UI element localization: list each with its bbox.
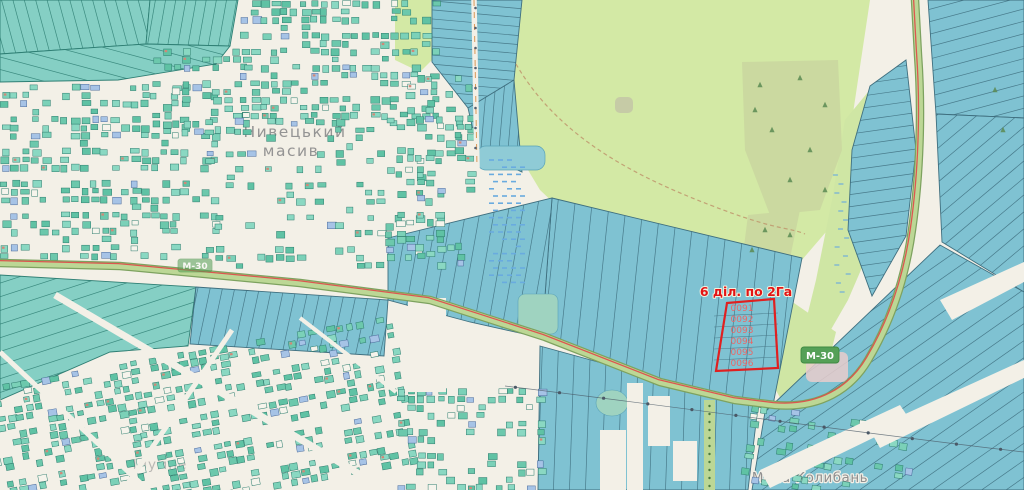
parcel bbox=[171, 150, 178, 155]
parcel bbox=[448, 396, 454, 403]
parcel bbox=[420, 90, 428, 95]
parcel bbox=[102, 180, 110, 186]
parcel bbox=[226, 183, 233, 188]
parcel bbox=[436, 117, 442, 123]
parcel bbox=[519, 470, 526, 476]
parcel bbox=[107, 463, 113, 469]
parcel bbox=[757, 438, 764, 446]
parcel bbox=[422, 17, 431, 24]
parcel bbox=[81, 84, 89, 89]
parcel bbox=[332, 2, 339, 9]
parcel bbox=[320, 40, 326, 46]
parcel bbox=[299, 396, 308, 403]
parcel bbox=[233, 57, 241, 63]
parcel bbox=[172, 244, 181, 250]
parcel bbox=[7, 423, 15, 429]
parcel bbox=[537, 397, 546, 403]
parcel bbox=[43, 100, 51, 106]
street-gap bbox=[408, 298, 446, 392]
parcel bbox=[408, 405, 416, 410]
parcel bbox=[163, 197, 170, 203]
tree-dot bbox=[708, 429, 710, 431]
parcel bbox=[143, 93, 150, 98]
parcel bbox=[131, 246, 137, 251]
parcel bbox=[350, 65, 356, 71]
parcel bbox=[377, 447, 385, 455]
tree-dot bbox=[708, 453, 710, 455]
parcel bbox=[21, 182, 27, 187]
parcel bbox=[71, 118, 80, 124]
parcel bbox=[262, 98, 270, 105]
parcel bbox=[336, 248, 344, 254]
parcel bbox=[182, 89, 189, 95]
parcel bbox=[200, 213, 208, 218]
parcel bbox=[226, 127, 234, 133]
parcel bbox=[258, 254, 265, 260]
parcel bbox=[242, 414, 251, 422]
parcel bbox=[284, 374, 293, 381]
pond bbox=[596, 390, 628, 416]
parcel bbox=[448, 245, 454, 251]
building bbox=[14, 159, 17, 161]
parcel bbox=[198, 350, 206, 356]
parcel bbox=[216, 246, 224, 252]
parcel bbox=[232, 481, 240, 489]
parcel bbox=[339, 340, 348, 348]
parcel bbox=[376, 317, 384, 323]
parcel bbox=[244, 437, 253, 445]
parcel bbox=[321, 80, 328, 85]
parcel bbox=[142, 85, 148, 91]
parcel bbox=[342, 113, 350, 120]
parcel bbox=[211, 198, 219, 204]
parcel bbox=[320, 16, 326, 23]
parcel bbox=[336, 151, 344, 158]
parcel bbox=[332, 66, 340, 72]
parcel bbox=[101, 100, 108, 106]
parcel bbox=[499, 389, 508, 394]
parcel bbox=[248, 183, 254, 190]
parcel bbox=[206, 159, 215, 164]
parcel bbox=[439, 396, 445, 401]
parcel bbox=[321, 359, 330, 365]
building bbox=[225, 91, 228, 93]
parcel bbox=[206, 120, 213, 125]
parcel bbox=[233, 49, 240, 55]
parcel bbox=[899, 443, 908, 451]
parcel bbox=[92, 228, 99, 234]
parcel bbox=[391, 81, 399, 86]
parcel bbox=[498, 429, 506, 436]
parcel bbox=[458, 155, 466, 161]
parcel-id-label: 0091 bbox=[731, 304, 754, 314]
parcel bbox=[72, 164, 80, 170]
parcel bbox=[397, 156, 403, 163]
tree-dot bbox=[708, 485, 710, 487]
parcel bbox=[32, 190, 38, 196]
parcel bbox=[243, 130, 251, 135]
parcel bbox=[11, 245, 17, 251]
parcel bbox=[428, 413, 434, 419]
parcel bbox=[82, 118, 90, 124]
parcel bbox=[467, 398, 474, 403]
parcel bbox=[418, 75, 425, 82]
parcel bbox=[277, 231, 285, 238]
parcel bbox=[59, 423, 67, 430]
parcel bbox=[332, 358, 340, 364]
parcel bbox=[211, 109, 218, 116]
building bbox=[306, 184, 309, 186]
parcel bbox=[390, 105, 396, 110]
parcel bbox=[263, 34, 271, 40]
parcel bbox=[161, 214, 168, 219]
parcel bbox=[320, 9, 326, 16]
parcel bbox=[167, 404, 175, 411]
parcel bbox=[436, 159, 442, 164]
parcel bbox=[428, 100, 435, 106]
parcel bbox=[179, 474, 187, 480]
parcel bbox=[437, 135, 444, 142]
parcel bbox=[343, 97, 350, 102]
parcel bbox=[438, 123, 444, 129]
parcel bbox=[19, 479, 26, 486]
parcel bbox=[214, 97, 222, 104]
building bbox=[45, 450, 48, 453]
parcel bbox=[468, 469, 475, 474]
parcel bbox=[247, 151, 256, 157]
parcel bbox=[236, 264, 243, 269]
parcel bbox=[132, 377, 139, 383]
parcel bbox=[359, 459, 367, 466]
parcel bbox=[147, 406, 155, 413]
parcel bbox=[455, 132, 461, 137]
parcel bbox=[122, 125, 130, 132]
parcel bbox=[399, 430, 408, 437]
parcel bbox=[52, 441, 59, 447]
parcel bbox=[286, 256, 294, 262]
power-pole-dot bbox=[646, 402, 649, 405]
parcel bbox=[152, 213, 160, 218]
parcel bbox=[21, 245, 29, 251]
parcel bbox=[390, 97, 398, 102]
parcel bbox=[279, 407, 287, 414]
parcel bbox=[79, 484, 86, 490]
parcel bbox=[379, 390, 386, 397]
parcel bbox=[381, 80, 388, 86]
parcel bbox=[83, 378, 92, 385]
parcel bbox=[157, 462, 164, 469]
parcel bbox=[190, 480, 199, 488]
parcel bbox=[538, 429, 544, 435]
parcel bbox=[344, 429, 353, 436]
parcel bbox=[132, 156, 141, 162]
parcel bbox=[332, 57, 338, 62]
building bbox=[121, 157, 124, 159]
parcel bbox=[416, 469, 423, 475]
parcel bbox=[217, 451, 226, 458]
parcel bbox=[789, 426, 797, 432]
field-gap bbox=[648, 396, 670, 446]
parcel bbox=[291, 81, 298, 86]
parcel bbox=[276, 118, 283, 124]
parcel bbox=[212, 141, 218, 147]
parcel bbox=[834, 457, 843, 465]
parcel bbox=[407, 244, 416, 250]
parcel bbox=[447, 151, 455, 156]
parcel bbox=[428, 171, 436, 176]
parcel bbox=[312, 33, 320, 38]
parcel bbox=[151, 205, 158, 211]
parcel bbox=[11, 189, 17, 195]
parcel bbox=[31, 221, 37, 228]
parcel bbox=[2, 198, 10, 203]
parcel bbox=[99, 415, 106, 421]
parcel bbox=[0, 425, 6, 432]
parcel bbox=[372, 415, 381, 423]
parcel bbox=[251, 10, 258, 15]
parcel bbox=[229, 351, 238, 358]
parcel bbox=[61, 165, 67, 172]
parcel bbox=[3, 383, 10, 390]
parcel bbox=[357, 182, 363, 187]
pole-dot bbox=[474, 7, 477, 10]
road-shield-text: М-30 bbox=[182, 262, 207, 272]
parcel bbox=[282, 1, 291, 7]
parcel bbox=[60, 479, 67, 485]
parcel bbox=[220, 354, 229, 361]
map-canvas[interactable]: Нивецький масив Шумне Мала Колибань М-30… bbox=[0, 0, 1024, 490]
parcel bbox=[23, 157, 29, 162]
parcel bbox=[226, 152, 233, 157]
parcel bbox=[42, 221, 50, 227]
parcel bbox=[75, 387, 83, 393]
parcel bbox=[386, 224, 394, 231]
parcel bbox=[227, 175, 234, 180]
building bbox=[337, 327, 340, 330]
parcel bbox=[329, 350, 337, 357]
parcel bbox=[786, 443, 793, 451]
parcel bbox=[457, 406, 464, 412]
parcel bbox=[141, 126, 149, 133]
parcel bbox=[82, 245, 90, 250]
parcel bbox=[92, 148, 100, 154]
parcel bbox=[359, 337, 365, 343]
parcel bbox=[455, 76, 461, 82]
parcel bbox=[372, 105, 380, 110]
parcel bbox=[177, 466, 184, 472]
parcel bbox=[745, 453, 754, 459]
parcel bbox=[353, 1, 360, 7]
parcel bbox=[33, 117, 39, 122]
parcel bbox=[741, 468, 749, 476]
parcel bbox=[130, 86, 136, 91]
parcel bbox=[77, 410, 83, 415]
parcel bbox=[61, 188, 69, 193]
parcel bbox=[370, 351, 378, 357]
tree-dot bbox=[708, 405, 710, 407]
parcel bbox=[750, 421, 759, 428]
parcel bbox=[112, 100, 119, 106]
parcel bbox=[393, 348, 401, 355]
parcel bbox=[33, 150, 42, 157]
parcel bbox=[418, 180, 425, 185]
power-pole-dot bbox=[558, 391, 561, 394]
parcel bbox=[93, 245, 99, 250]
parcel bbox=[282, 17, 291, 23]
parcel bbox=[172, 133, 178, 138]
parcel bbox=[272, 1, 281, 6]
parcel bbox=[349, 388, 358, 396]
parcel bbox=[13, 180, 20, 186]
parcel bbox=[0, 254, 8, 259]
parcel bbox=[215, 127, 221, 134]
parcel bbox=[411, 72, 418, 77]
building bbox=[418, 213, 421, 215]
parcel bbox=[39, 482, 46, 489]
parcel bbox=[417, 406, 423, 412]
parcel bbox=[23, 214, 29, 219]
parcel bbox=[408, 155, 414, 161]
building bbox=[325, 377, 328, 380]
parcel bbox=[26, 404, 33, 411]
parcel bbox=[466, 429, 474, 435]
parcel bbox=[291, 414, 298, 421]
power-pole-dot bbox=[734, 414, 737, 417]
parcel bbox=[163, 181, 170, 188]
parcel bbox=[225, 106, 233, 112]
parcel bbox=[243, 57, 251, 62]
parcel bbox=[100, 150, 107, 156]
parcel bbox=[386, 239, 395, 246]
parcel bbox=[132, 221, 138, 226]
parcel bbox=[269, 402, 277, 409]
parcel bbox=[311, 346, 318, 352]
parcel bbox=[402, 459, 409, 466]
parcel bbox=[392, 50, 398, 56]
parcel bbox=[802, 477, 809, 484]
parcel bbox=[3, 149, 10, 156]
parcel bbox=[81, 197, 89, 203]
parcel bbox=[248, 447, 255, 455]
parcel bbox=[229, 409, 238, 417]
parcel bbox=[389, 452, 398, 459]
parcel bbox=[80, 254, 88, 259]
parcel bbox=[97, 400, 105, 406]
parcel bbox=[408, 437, 416, 444]
parcel bbox=[72, 84, 80, 90]
parcel bbox=[176, 386, 183, 392]
parcel bbox=[315, 199, 324, 204]
parcel bbox=[216, 256, 223, 261]
parcel bbox=[446, 91, 453, 97]
parcel bbox=[350, 112, 357, 118]
parcel bbox=[297, 167, 303, 173]
parcel bbox=[184, 66, 190, 72]
parcel bbox=[508, 485, 515, 490]
parcel bbox=[387, 247, 394, 252]
parcel bbox=[285, 383, 292, 390]
parcel bbox=[286, 183, 292, 189]
parcel bbox=[81, 126, 87, 131]
parcel bbox=[423, 33, 432, 38]
parcel bbox=[458, 260, 464, 266]
parcel bbox=[394, 412, 401, 418]
parcel bbox=[456, 243, 462, 250]
parcel-id-label: 0096 bbox=[731, 359, 754, 369]
parcel bbox=[256, 379, 264, 386]
parcel bbox=[469, 422, 476, 428]
parcel bbox=[6, 463, 15, 470]
parcel bbox=[103, 228, 109, 233]
building bbox=[4, 93, 7, 95]
building bbox=[459, 141, 462, 143]
parcel bbox=[435, 151, 443, 157]
parcel bbox=[281, 25, 287, 30]
parcel bbox=[0, 182, 7, 187]
parcel bbox=[184, 121, 191, 128]
parcel bbox=[398, 389, 404, 396]
parcel bbox=[778, 426, 785, 433]
parcel bbox=[309, 460, 315, 466]
parcel bbox=[100, 197, 107, 203]
parcel bbox=[750, 413, 757, 419]
pole-dot bbox=[474, 67, 477, 70]
parcel bbox=[59, 431, 68, 439]
parcel bbox=[96, 463, 104, 470]
parcel bbox=[141, 253, 148, 259]
parcel bbox=[283, 81, 291, 87]
parcel bbox=[466, 85, 472, 92]
parcel bbox=[38, 474, 48, 482]
parcel bbox=[203, 429, 212, 436]
parcel bbox=[110, 478, 119, 486]
parcel bbox=[417, 173, 423, 178]
map-viewport[interactable]: Нивецький масив Шумне Мала Колибань М-30… bbox=[0, 0, 1024, 490]
parcel bbox=[252, 89, 260, 95]
parcel bbox=[81, 133, 89, 140]
parcel bbox=[418, 195, 425, 201]
parcel bbox=[247, 455, 255, 461]
parcel bbox=[165, 64, 172, 70]
parcel bbox=[391, 16, 397, 21]
building bbox=[228, 257, 231, 259]
parcel bbox=[400, 112, 407, 117]
building bbox=[356, 231, 359, 233]
parcel bbox=[14, 406, 22, 413]
parcel bbox=[142, 198, 149, 203]
parcel bbox=[526, 469, 534, 475]
parcel bbox=[2, 125, 11, 129]
parcel bbox=[405, 255, 411, 260]
parcel bbox=[407, 220, 414, 225]
parcel bbox=[167, 395, 175, 401]
parcel bbox=[179, 418, 187, 424]
parcel bbox=[455, 148, 464, 154]
parcel bbox=[321, 34, 329, 41]
parcel bbox=[182, 130, 188, 136]
parcel bbox=[506, 477, 512, 482]
parcel bbox=[210, 468, 219, 476]
parcel bbox=[282, 89, 290, 95]
parcel bbox=[10, 134, 16, 140]
tree-dot bbox=[708, 437, 710, 439]
parcel bbox=[427, 251, 435, 256]
parcel bbox=[519, 421, 526, 426]
road-shield-text: М-30 bbox=[806, 351, 834, 362]
parcel bbox=[387, 254, 394, 260]
parcel bbox=[401, 33, 409, 39]
parcel bbox=[82, 100, 91, 105]
